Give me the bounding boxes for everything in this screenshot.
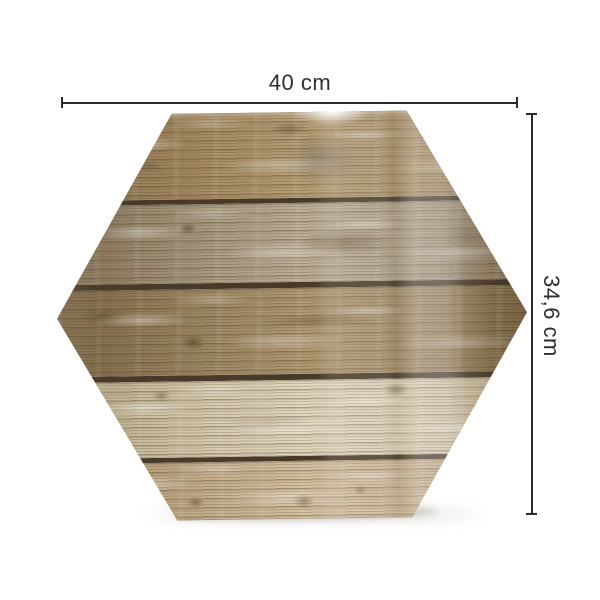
wood-knot [151, 389, 171, 402]
width-dimension-tick-left [61, 97, 63, 108]
wood-knot [353, 484, 368, 495]
width-dimension-line [62, 102, 518, 104]
wood-knot [293, 493, 315, 508]
product-image-canvas: 40 cm 34,6 cm [0, 0, 600, 600]
wood-knot [178, 222, 196, 234]
wood-knot [225, 413, 315, 430]
wood-knot [439, 221, 499, 252]
wood-knot [182, 335, 206, 351]
height-dimension-line [531, 114, 533, 514]
wood-plank-1 [54, 109, 525, 202]
width-dimension-label: 40 cm [0, 70, 600, 96]
wood-knot [250, 313, 380, 327]
plank-stack [54, 109, 530, 523]
wood-knot [282, 132, 363, 185]
height-dimension-label: 34,6 cm [538, 275, 564, 357]
wood-knot [269, 122, 309, 137]
wood-knot [187, 496, 205, 509]
wood-knot [84, 307, 124, 326]
hexagon-wood-panel [54, 109, 530, 523]
wood-knot [134, 160, 164, 170]
height-dimension-tick-bottom [526, 513, 537, 515]
wood-plank-4 [58, 377, 529, 460]
wood-plank-3 [57, 285, 528, 378]
width-dimension-tick-right [516, 97, 518, 108]
wood-knot [429, 474, 469, 491]
wood-knot [383, 381, 409, 396]
wood-knot [297, 228, 397, 255]
height-dimension-tick-top [526, 113, 537, 115]
wood-plank-2 [55, 200, 526, 286]
